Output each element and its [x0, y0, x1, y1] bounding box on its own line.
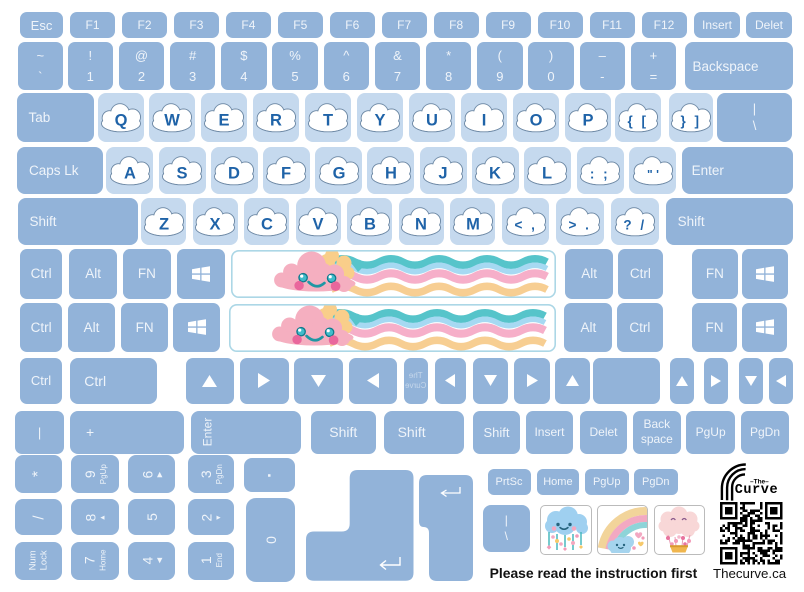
svg-text:C: C — [261, 216, 273, 234]
svg-text:B: B — [364, 216, 376, 234]
svg-text:Q: Q — [114, 112, 127, 130]
svg-text:U: U — [426, 112, 438, 130]
svg-text:D: D — [228, 165, 240, 183]
svg-text:N: N — [415, 216, 427, 234]
svg-text:H: H — [385, 165, 397, 183]
svg-text:Y: Y — [375, 112, 386, 130]
svg-text:E: E — [219, 112, 230, 130]
svg-text:A: A — [124, 165, 136, 183]
svg-text:< ,: < , — [514, 218, 537, 233]
svg-text:Curve: Curve — [735, 483, 779, 498]
svg-text:L: L — [542, 165, 552, 183]
svg-text:J: J — [438, 165, 447, 183]
svg-text:S: S — [176, 165, 187, 183]
svg-text:Z: Z — [159, 216, 169, 234]
svg-text:W: W — [165, 112, 181, 130]
svg-text:R: R — [270, 112, 282, 130]
svg-text:{ [: { [ — [627, 114, 648, 129]
svg-text:X: X — [210, 216, 221, 234]
svg-text:> .: > . — [569, 218, 592, 233]
svg-text:: ;: : ; — [590, 167, 610, 182]
svg-text:F: F — [281, 165, 291, 183]
svg-text:I: I — [482, 112, 487, 130]
svg-text:K: K — [489, 165, 501, 183]
svg-text:O: O — [530, 112, 543, 130]
svg-text:? /: ? / — [623, 218, 646, 233]
svg-text:" ': " ' — [647, 168, 659, 182]
svg-text:T: T — [323, 112, 333, 130]
svg-text:} ]: } ] — [681, 114, 702, 129]
svg-text:M: M — [466, 216, 480, 234]
svg-text:G: G — [332, 165, 345, 183]
svg-text:V: V — [313, 216, 324, 234]
svg-text:P: P — [582, 112, 593, 130]
